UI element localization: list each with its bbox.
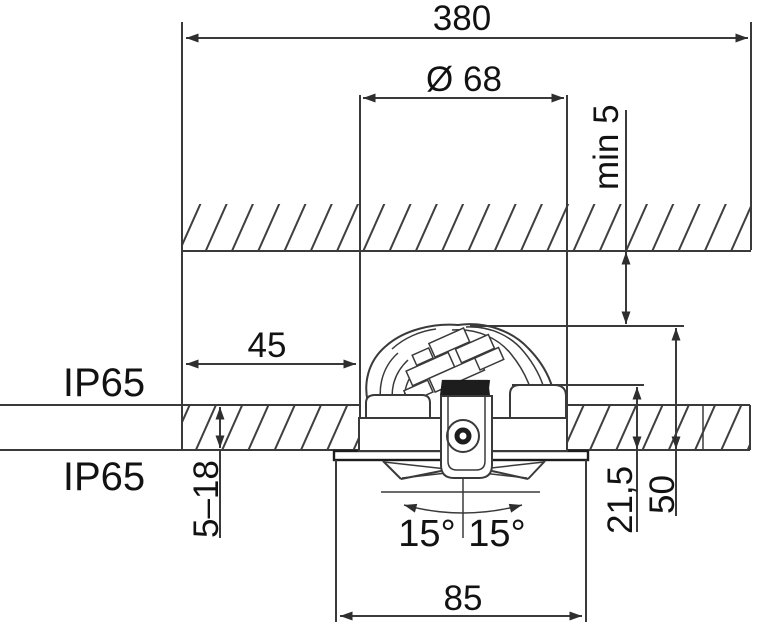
upper-ceiling-section [183, 204, 751, 251]
luminaire-cross-section [334, 318, 588, 538]
dimension-bezel-width: 85 [336, 460, 586, 622]
housing-shoulder-left [366, 395, 430, 418]
dim-bezel-width-label: 85 [444, 579, 483, 618]
upper-ceiling-hatch [183, 204, 751, 251]
dim-tilt-right-label: 15° [468, 513, 525, 555]
ip65-label-above-ceiling: IP65 [63, 361, 145, 405]
dimension-hole-diameter: Ø 68 [363, 60, 564, 99]
dimension-tilt-angles: 15° 15° [398, 513, 525, 555]
dim-depth-total-label: 50 [643, 475, 682, 514]
ip65-label-below-ceiling: IP65 [63, 455, 145, 499]
housing-shoulder-right [510, 385, 566, 418]
dim-ceiling-thickness-label: 5–18 [187, 460, 226, 538]
knurl-coil-icon [441, 380, 489, 396]
dimension-side-clearance: 45 [186, 326, 356, 365]
lower-ceiling-hatch-left [183, 406, 359, 450]
dim-depth-inner-label: 21,5 [601, 466, 640, 534]
dim-overall-width-label: 380 [433, 0, 491, 38]
dim-hole-diameter-label: Ø 68 [426, 60, 502, 99]
dim-min-clearance-label: min 5 [587, 104, 626, 190]
dimension-diagram: 380 Ø 68 min 5 45 5–18 21,5 50 15° 15° 8… [0, 0, 770, 625]
dim-tilt-left-label: 15° [398, 513, 455, 555]
dim-side-clearance-label: 45 [248, 326, 287, 365]
dimension-overall-width: 380 [186, 0, 748, 38]
lower-ceiling-hatch-right [567, 406, 750, 450]
diagram-canvas: 380 Ø 68 min 5 45 5–18 21,5 50 15° 15° 8… [0, 0, 770, 625]
